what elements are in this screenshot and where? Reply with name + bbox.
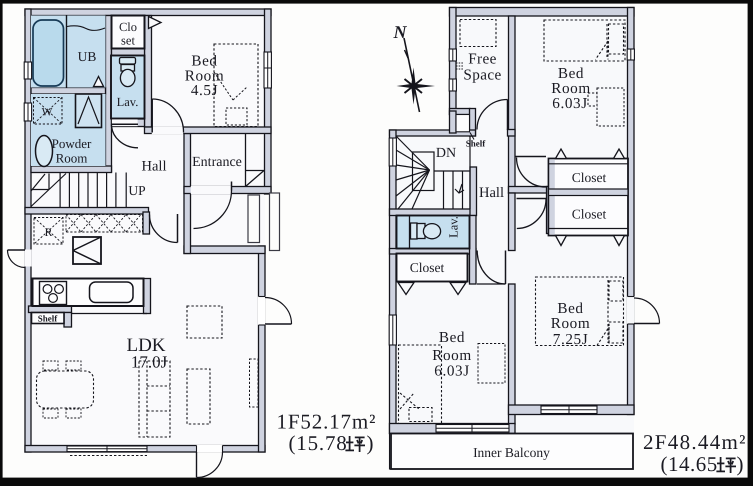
svg-text:2F48.44m²: 2F48.44m²	[643, 430, 747, 454]
svg-text:set: set	[121, 34, 135, 48]
svg-text:(15.78: (15.78	[289, 431, 348, 455]
svg-text:Powder: Powder	[52, 136, 92, 151]
svg-text:17.0J: 17.0J	[131, 353, 168, 372]
svg-text:UB: UB	[78, 49, 97, 64]
svg-text:Entrance: Entrance	[192, 155, 242, 170]
svg-text:): )	[367, 431, 374, 455]
svg-text:Clo: Clo	[119, 20, 137, 34]
svg-text:Closet: Closet	[572, 207, 607, 222]
svg-text:Shelf: Shelf	[466, 139, 487, 149]
svg-text:Room: Room	[432, 347, 472, 364]
svg-text:Hall: Hall	[142, 159, 167, 175]
svg-text:Shelf: Shelf	[38, 314, 59, 324]
svg-text:): )	[737, 452, 744, 476]
svg-text:Closet: Closet	[410, 260, 445, 275]
svg-text:Bed: Bed	[439, 329, 465, 346]
svg-text:(14.65: (14.65	[661, 452, 718, 476]
svg-text:DN: DN	[436, 146, 456, 161]
svg-text:Free: Free	[468, 51, 497, 68]
svg-text:R: R	[45, 227, 53, 239]
svg-text:UP: UP	[128, 183, 145, 198]
svg-text:Space: Space	[463, 67, 501, 84]
svg-text:Closet: Closet	[572, 170, 607, 185]
svg-text:6.03J: 6.03J	[434, 363, 470, 380]
svg-text:1F52.17m²: 1F52.17m²	[277, 410, 377, 434]
svg-text:Inner Balcony: Inner Balcony	[473, 445, 550, 460]
svg-text:Room: Room	[56, 151, 88, 166]
svg-text:Room: Room	[551, 315, 591, 332]
svg-text:Hall: Hall	[479, 185, 504, 201]
svg-text:W: W	[42, 107, 53, 119]
svg-text:Lav.: Lav.	[117, 95, 139, 109]
svg-text:Lav.: Lav.	[447, 216, 461, 238]
svg-text:N: N	[393, 22, 408, 42]
svg-text:6.03J: 6.03J	[552, 95, 588, 112]
